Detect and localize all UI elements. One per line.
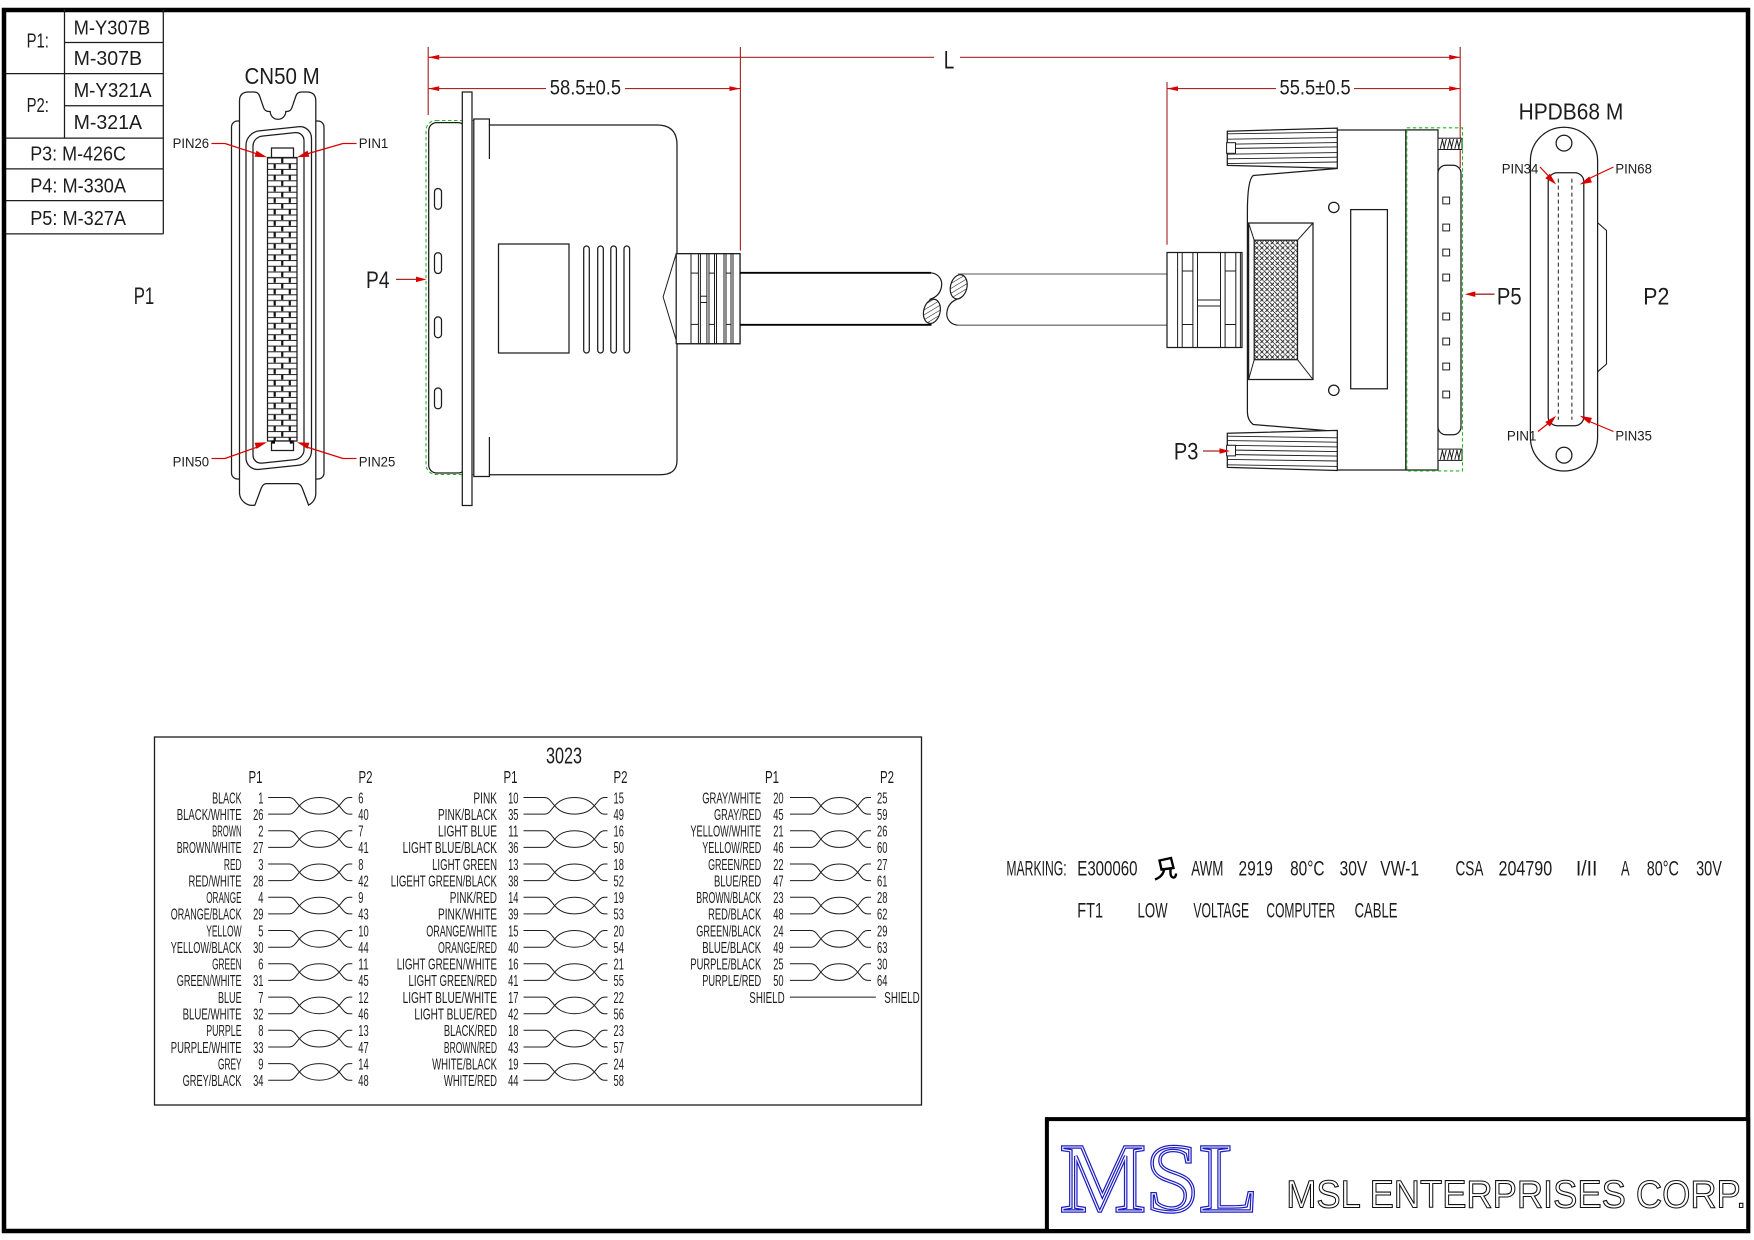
- svg-text:MSL ENTERPRISES CORP.: MSL ENTERPRISES CORP.: [1286, 1174, 1746, 1217]
- svg-text:62: 62: [877, 907, 887, 924]
- svg-text:34: 34: [253, 1073, 263, 1090]
- svg-text:47: 47: [358, 1040, 368, 1057]
- svg-text:8: 8: [258, 1023, 263, 1040]
- svg-text:LIGHT GREEN/RED: LIGHT GREEN/RED: [409, 973, 498, 990]
- svg-text:GREEN/BLACK: GREEN/BLACK: [696, 923, 761, 940]
- svg-text:30V: 30V: [1340, 858, 1368, 881]
- svg-text:FT1: FT1: [1077, 900, 1103, 923]
- svg-text:P3: P3: [1174, 439, 1199, 466]
- svg-text:E300060: E300060: [1077, 858, 1137, 881]
- svg-text:PINK/RED: PINK/RED: [450, 890, 497, 907]
- svg-text:33: 33: [253, 1040, 263, 1057]
- svg-text:GREEN: GREEN: [212, 957, 242, 974]
- svg-text:RED: RED: [224, 857, 242, 874]
- svg-text:LOW: LOW: [1138, 900, 1168, 923]
- svg-text:21: 21: [614, 957, 624, 974]
- svg-text:ORANGE/WHITE: ORANGE/WHITE: [426, 923, 497, 940]
- svg-text:23: 23: [614, 1023, 624, 1040]
- svg-text:30: 30: [877, 957, 887, 974]
- svg-text:YELLOW/BLACK: YELLOW/BLACK: [171, 940, 242, 957]
- svg-text:43: 43: [508, 1040, 518, 1057]
- svg-text:53: 53: [614, 907, 624, 924]
- svg-text:18: 18: [508, 1023, 518, 1040]
- svg-text:44: 44: [508, 1073, 518, 1090]
- svg-text:31: 31: [253, 973, 263, 990]
- svg-text:50: 50: [614, 840, 624, 857]
- svg-text:CABLE: CABLE: [1355, 900, 1398, 923]
- svg-text:2919: 2919: [1239, 858, 1273, 881]
- svg-text:CSA: CSA: [1456, 858, 1484, 881]
- svg-text:LIGHT BLUE: LIGHT BLUE: [438, 824, 497, 841]
- svg-text:15: 15: [614, 790, 624, 807]
- svg-text:80°C: 80°C: [1647, 858, 1679, 881]
- svg-text:SHIELD: SHIELD: [884, 990, 919, 1007]
- svg-text:PURPLE: PURPLE: [206, 1023, 241, 1040]
- svg-text:11: 11: [508, 824, 518, 841]
- svg-text:P1: P1: [134, 283, 155, 310]
- svg-text:30: 30: [253, 940, 263, 957]
- svg-text:YELLOW: YELLOW: [206, 923, 242, 940]
- svg-text:27: 27: [877, 857, 887, 874]
- svg-text:38: 38: [508, 873, 518, 890]
- svg-text:BROWN: BROWN: [212, 824, 242, 841]
- svg-text:19: 19: [508, 1056, 518, 1073]
- svg-text:BLUE/BLACK: BLUE/BLACK: [702, 940, 761, 957]
- svg-text:45: 45: [358, 973, 368, 990]
- svg-text:7: 7: [358, 824, 363, 841]
- svg-text:GREY/BLACK: GREY/BLACK: [183, 1073, 242, 1090]
- svg-text:49: 49: [773, 940, 783, 957]
- svg-text:BLUE/WHITE: BLUE/WHITE: [183, 1007, 242, 1024]
- svg-text:61: 61: [877, 873, 887, 890]
- svg-text:VW-1: VW-1: [1380, 858, 1419, 881]
- svg-text:BROWN/WHITE: BROWN/WHITE: [177, 840, 242, 857]
- svg-text:42: 42: [358, 873, 368, 890]
- svg-text:41: 41: [358, 840, 368, 857]
- svg-text:43: 43: [358, 907, 368, 924]
- svg-text:1: 1: [258, 790, 263, 807]
- svg-text:PIN35: PIN35: [1615, 428, 1652, 444]
- svg-text:GREY: GREY: [218, 1056, 242, 1073]
- svg-text:6: 6: [258, 957, 263, 974]
- svg-text:24: 24: [614, 1056, 624, 1073]
- svg-text:9: 9: [258, 1056, 263, 1073]
- svg-text:SHIELD: SHIELD: [749, 990, 784, 1007]
- svg-text:I/II: I/II: [1576, 858, 1598, 881]
- svg-text:BROWN/BLACK: BROWN/BLACK: [696, 890, 761, 907]
- svg-text:LIGEHT GREEN/BLACK: LIGEHT GREEN/BLACK: [391, 873, 497, 890]
- svg-text:29: 29: [253, 907, 263, 924]
- svg-text:ORANGE/RED: ORANGE/RED: [438, 940, 497, 957]
- svg-text:8: 8: [358, 857, 363, 874]
- svg-text:24: 24: [773, 923, 783, 940]
- svg-text:6: 6: [358, 790, 363, 807]
- svg-text:46: 46: [358, 1007, 368, 1024]
- svg-text:46: 46: [773, 840, 783, 857]
- svg-text:GRAY/RED: GRAY/RED: [714, 807, 761, 824]
- svg-text:BROWN/RED: BROWN/RED: [444, 1040, 497, 1057]
- svg-text:P1:: P1:: [27, 31, 49, 53]
- svg-text:PURPLE/RED: PURPLE/RED: [702, 973, 761, 990]
- svg-text:26: 26: [877, 824, 887, 841]
- svg-text:64: 64: [877, 973, 887, 990]
- svg-text:25: 25: [773, 957, 783, 974]
- svg-text:48: 48: [773, 907, 783, 924]
- svg-text:MSL: MSL: [1060, 1125, 1258, 1232]
- svg-text:P2: P2: [880, 767, 894, 787]
- svg-text:80°C: 80°C: [1290, 858, 1324, 881]
- svg-text:11: 11: [358, 957, 368, 974]
- svg-text:M-Y307B: M-Y307B: [74, 18, 151, 40]
- svg-text:204790: 204790: [1499, 858, 1553, 881]
- svg-text:GRAY/WHITE: GRAY/WHITE: [702, 790, 761, 807]
- svg-text:26: 26: [253, 807, 263, 824]
- svg-text:58: 58: [614, 1073, 624, 1090]
- svg-text:PIN68: PIN68: [1615, 161, 1652, 177]
- svg-text:P2: P2: [1643, 283, 1669, 310]
- svg-text:P2:: P2:: [27, 95, 49, 117]
- svg-text:P1: P1: [249, 767, 263, 787]
- svg-text:63: 63: [877, 940, 887, 957]
- svg-text:GREEN/RED: GREEN/RED: [708, 857, 761, 874]
- svg-text:20: 20: [773, 790, 783, 807]
- svg-text:PIN1: PIN1: [1507, 428, 1537, 444]
- svg-text:2: 2: [258, 824, 263, 841]
- svg-text:18: 18: [614, 857, 624, 874]
- svg-text:BLACK/WHITE: BLACK/WHITE: [177, 807, 242, 824]
- svg-text:12: 12: [358, 990, 368, 1007]
- svg-text:P5: M-327A: P5: M-327A: [30, 208, 126, 230]
- svg-text:4: 4: [258, 890, 263, 907]
- svg-text:PURPLE/BLACK: PURPLE/BLACK: [690, 957, 761, 974]
- svg-text:BLUE: BLUE: [218, 990, 242, 1007]
- svg-text:60: 60: [877, 840, 887, 857]
- svg-text:A: A: [1621, 858, 1630, 881]
- svg-text:BLACK/RED: BLACK/RED: [444, 1023, 497, 1040]
- svg-text:13: 13: [358, 1023, 368, 1040]
- svg-text:16: 16: [614, 824, 624, 841]
- svg-text:GREEN/WHITE: GREEN/WHITE: [177, 973, 242, 990]
- svg-text:P2: P2: [614, 767, 628, 787]
- svg-text:14: 14: [508, 890, 518, 907]
- svg-text:42: 42: [508, 1007, 518, 1024]
- svg-text:36: 36: [508, 840, 518, 857]
- svg-text:17: 17: [508, 990, 518, 1007]
- svg-text:20: 20: [614, 923, 624, 940]
- svg-text:BLUE/RED: BLUE/RED: [714, 873, 761, 890]
- svg-text:P2: P2: [359, 767, 373, 787]
- svg-text:PURPLE/WHITE: PURPLE/WHITE: [171, 1040, 242, 1057]
- svg-text:40: 40: [358, 807, 368, 824]
- svg-text:PINK: PINK: [473, 790, 497, 807]
- svg-text:32: 32: [253, 1007, 263, 1024]
- svg-text:BLACK: BLACK: [212, 790, 242, 807]
- svg-text:MARKING:: MARKING:: [1006, 858, 1066, 881]
- svg-text:9: 9: [358, 890, 363, 907]
- svg-text:28: 28: [877, 890, 887, 907]
- svg-text:7: 7: [258, 990, 263, 1007]
- svg-text:30V: 30V: [1696, 858, 1722, 881]
- svg-text:49: 49: [614, 807, 624, 824]
- svg-text:56: 56: [614, 1007, 624, 1024]
- svg-text:WHITE/BLACK: WHITE/BLACK: [432, 1056, 497, 1073]
- svg-text:19: 19: [614, 890, 624, 907]
- svg-text:23: 23: [773, 890, 783, 907]
- svg-text:YELLOW/RED: YELLOW/RED: [702, 840, 761, 857]
- svg-text:13: 13: [508, 857, 518, 874]
- svg-text:ORANGE/BLACK: ORANGE/BLACK: [171, 907, 242, 924]
- svg-text:PIN26: PIN26: [173, 135, 210, 151]
- svg-text:16: 16: [508, 957, 518, 974]
- svg-text:HPDB68 M: HPDB68 M: [1519, 99, 1624, 125]
- svg-text:3: 3: [258, 857, 263, 874]
- svg-text:58.5±0.5: 58.5±0.5: [550, 77, 621, 100]
- svg-text:PIN34: PIN34: [1502, 161, 1539, 177]
- svg-text:14: 14: [358, 1056, 368, 1073]
- svg-text:PIN1: PIN1: [359, 135, 389, 151]
- svg-text:10: 10: [358, 923, 368, 940]
- svg-text:RED/WHITE: RED/WHITE: [189, 873, 242, 890]
- svg-text:45: 45: [773, 807, 783, 824]
- svg-text:40: 40: [508, 940, 518, 957]
- svg-text:50: 50: [773, 973, 783, 990]
- svg-text:P5: P5: [1497, 283, 1522, 310]
- svg-text:M-321A: M-321A: [74, 112, 143, 134]
- svg-text:55: 55: [614, 973, 624, 990]
- svg-text:M-307B: M-307B: [74, 48, 143, 70]
- svg-text:54: 54: [614, 940, 624, 957]
- svg-text:LIGHT BLUE/WHITE: LIGHT BLUE/WHITE: [403, 990, 497, 1007]
- svg-text:PIN25: PIN25: [359, 454, 396, 470]
- svg-text:15: 15: [508, 923, 518, 940]
- svg-text:P4: P4: [366, 267, 390, 294]
- svg-text:LIGHT BLUE/BLACK: LIGHT BLUE/BLACK: [403, 840, 498, 857]
- svg-text:5: 5: [258, 923, 263, 940]
- svg-text:3023: 3023: [546, 743, 582, 769]
- svg-text:PINK/BLACK: PINK/BLACK: [438, 807, 497, 824]
- svg-text:COMPUTER: COMPUTER: [1266, 900, 1335, 923]
- svg-text:P1: P1: [504, 767, 518, 787]
- svg-text:48: 48: [358, 1073, 368, 1090]
- svg-text:LIGHT GREEN: LIGHT GREEN: [432, 857, 497, 874]
- svg-text:52: 52: [614, 873, 624, 890]
- svg-text:PIN50: PIN50: [173, 454, 210, 470]
- svg-text:29: 29: [877, 923, 887, 940]
- svg-text:28: 28: [253, 873, 263, 890]
- svg-text:55.5±0.5: 55.5±0.5: [1280, 77, 1351, 100]
- svg-text:VOLTAGE: VOLTAGE: [1193, 900, 1249, 923]
- svg-text:21: 21: [773, 824, 783, 841]
- svg-text:22: 22: [773, 857, 783, 874]
- svg-text:LIGHT BLUE/RED: LIGHT BLUE/RED: [414, 1007, 497, 1024]
- svg-text:M-Y321A: M-Y321A: [74, 80, 153, 102]
- svg-text:RED/BLACK: RED/BLACK: [708, 907, 761, 924]
- svg-text:ORANGE: ORANGE: [206, 890, 241, 907]
- svg-text:LIGHT GREEN/WHITE: LIGHT GREEN/WHITE: [397, 957, 497, 974]
- svg-text:10: 10: [508, 790, 518, 807]
- svg-text:L: L: [944, 47, 955, 75]
- svg-text:22: 22: [614, 990, 624, 1007]
- svg-text:57: 57: [614, 1040, 624, 1057]
- svg-text:25: 25: [877, 790, 887, 807]
- svg-text:P4: M-330A: P4: M-330A: [30, 175, 126, 197]
- svg-text:44: 44: [358, 940, 368, 957]
- svg-text:WHITE/RED: WHITE/RED: [444, 1073, 497, 1090]
- svg-text:YELLOW/WHITE: YELLOW/WHITE: [690, 824, 761, 841]
- svg-text:35: 35: [508, 807, 518, 824]
- svg-text:P3: M-426C: P3: M-426C: [30, 144, 126, 166]
- svg-text:PINK/WHITE: PINK/WHITE: [438, 907, 497, 924]
- svg-text:AWM: AWM: [1191, 858, 1223, 881]
- svg-text:CN50 M: CN50 M: [245, 63, 320, 89]
- svg-text:27: 27: [253, 840, 263, 857]
- svg-text:47: 47: [773, 873, 783, 890]
- svg-text:P1: P1: [765, 767, 779, 787]
- svg-text:39: 39: [508, 907, 518, 924]
- svg-text:41: 41: [508, 973, 518, 990]
- svg-text:59: 59: [877, 807, 887, 824]
